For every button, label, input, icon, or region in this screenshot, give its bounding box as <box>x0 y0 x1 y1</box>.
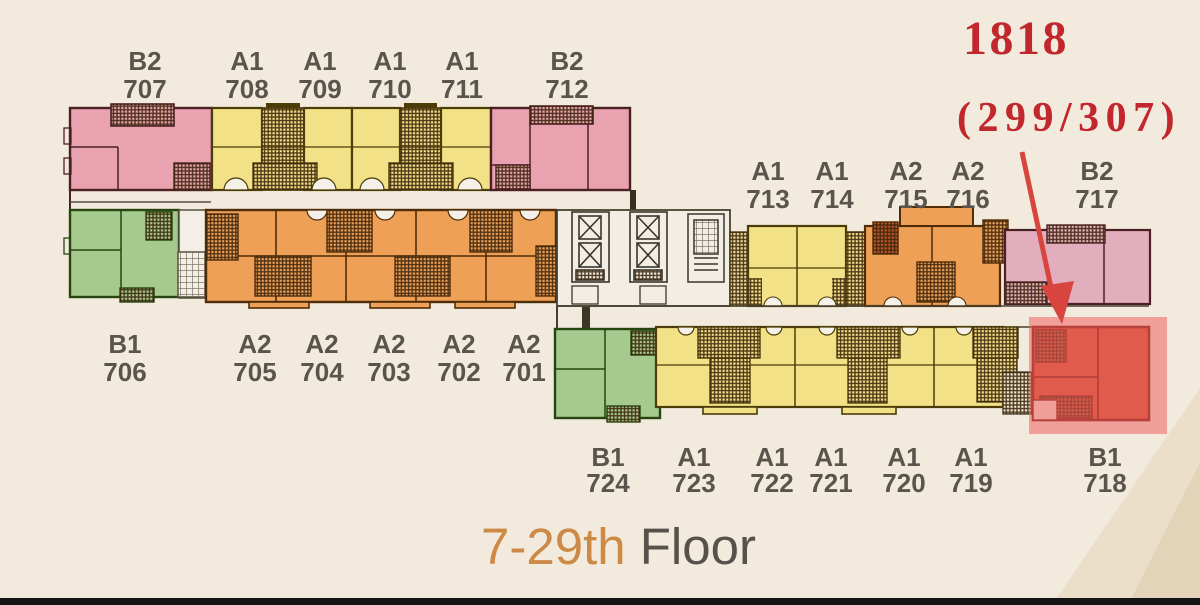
svg-text:B2: B2 <box>1080 156 1113 186</box>
svg-text:705: 705 <box>233 357 276 387</box>
svg-text:720: 720 <box>882 468 925 498</box>
svg-text:721: 721 <box>809 468 852 498</box>
svg-text:A2: A2 <box>507 329 540 359</box>
svg-text:716: 716 <box>946 184 989 214</box>
svg-text:A1: A1 <box>230 46 263 76</box>
svg-text:717: 717 <box>1075 184 1118 214</box>
svg-text:718: 718 <box>1083 468 1126 498</box>
svg-text:704: 704 <box>300 357 344 387</box>
svg-text:(299/307): (299/307) <box>957 95 1181 141</box>
svg-text:712: 712 <box>545 74 588 104</box>
svg-text:708: 708 <box>225 74 268 104</box>
svg-text:713: 713 <box>746 184 789 214</box>
svg-text:709: 709 <box>298 74 341 104</box>
svg-text:707: 707 <box>123 74 166 104</box>
svg-text:706: 706 <box>103 357 146 387</box>
svg-text:719: 719 <box>949 468 992 498</box>
svg-text:723: 723 <box>672 468 715 498</box>
svg-text:A1: A1 <box>373 46 406 76</box>
svg-text:1818: 1818 <box>963 12 1069 65</box>
svg-text:715: 715 <box>884 184 927 214</box>
svg-text:A2: A2 <box>305 329 338 359</box>
svg-text:A1: A1 <box>751 156 784 186</box>
svg-text:702: 702 <box>437 357 480 387</box>
svg-text:701: 701 <box>502 357 545 387</box>
svg-text:7-29th Floor: 7-29th Floor <box>481 518 756 575</box>
svg-text:A2: A2 <box>372 329 405 359</box>
svg-text:724: 724 <box>586 468 630 498</box>
svg-text:A1: A1 <box>815 156 848 186</box>
svg-text:722: 722 <box>750 468 793 498</box>
svg-text:A1: A1 <box>303 46 336 76</box>
svg-text:A2: A2 <box>442 329 475 359</box>
svg-text:A2: A2 <box>889 156 922 186</box>
svg-text:714: 714 <box>810 184 854 214</box>
svg-text:A2: A2 <box>238 329 271 359</box>
svg-text:B2: B2 <box>128 46 161 76</box>
svg-text:710: 710 <box>368 74 411 104</box>
svg-text:B2: B2 <box>550 46 583 76</box>
svg-text:A2: A2 <box>951 156 984 186</box>
svg-text:711: 711 <box>441 74 483 104</box>
svg-text:B1: B1 <box>108 329 141 359</box>
svg-text:703: 703 <box>367 357 410 387</box>
svg-text:A1: A1 <box>445 46 478 76</box>
